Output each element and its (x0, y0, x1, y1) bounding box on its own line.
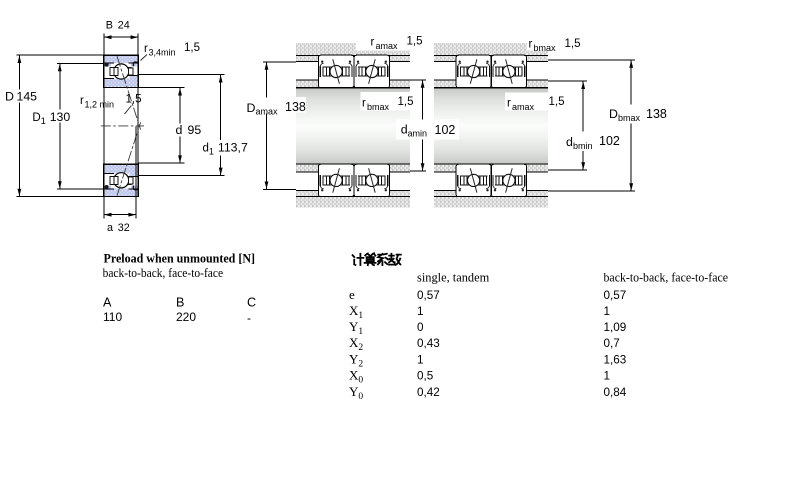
svg-text:r: r (507, 98, 511, 110)
svg-text:138: 138 (646, 107, 667, 121)
svg-text:0: 0 (417, 321, 424, 334)
svg-text:bmax: bmax (534, 43, 557, 53)
svg-text:r: r (371, 37, 375, 49)
svg-text:d: d (566, 135, 573, 149)
svg-text:back-to-back, face-to-face: back-to-back, face-to-face (604, 271, 729, 285)
svg-text:0,57: 0,57 (417, 289, 440, 302)
svg-text:1,5: 1,5 (565, 38, 581, 50)
svg-text:D: D (5, 90, 14, 104)
svg-text:1,63: 1,63 (604, 354, 627, 367)
svg-text:1,5: 1,5 (126, 94, 142, 106)
svg-text:1: 1 (604, 370, 611, 383)
svg-text:0,43: 0,43 (417, 337, 440, 350)
svg-text:r: r (529, 39, 533, 51)
svg-text:back-to-back, face-to-face: back-to-back, face-to-face (103, 266, 224, 280)
svg-text:D: D (247, 101, 256, 115)
svg-text:1,5: 1,5 (407, 36, 423, 48)
svg-text:bmin: bmin (573, 141, 593, 151)
svg-text:102: 102 (435, 123, 456, 137)
svg-text:1,5: 1,5 (184, 42, 200, 54)
svg-text:amax: amax (256, 107, 279, 117)
svg-text:C: C (247, 296, 256, 310)
svg-text:0,57: 0,57 (604, 289, 627, 302)
svg-text:0,84: 0,84 (604, 386, 627, 399)
svg-text:1,5: 1,5 (398, 96, 414, 108)
svg-text:amax: amax (512, 102, 535, 112)
svg-text:1,09: 1,09 (604, 321, 627, 334)
svg-text:102: 102 (599, 134, 620, 148)
svg-text:1: 1 (604, 305, 611, 318)
svg-text:amin: amin (408, 129, 428, 139)
svg-text:D: D (609, 107, 618, 121)
svg-text:Preload when unmounted [N]: Preload when unmounted [N] (104, 252, 256, 266)
svg-text:r: r (362, 98, 366, 110)
svg-text:1: 1 (417, 354, 424, 367)
svg-text:3,4min: 3,4min (149, 48, 176, 58)
svg-text:95: 95 (188, 123, 202, 137)
svg-text:220: 220 (176, 310, 196, 324)
svg-text:bmax: bmax (367, 102, 390, 112)
svg-text:B: B (176, 296, 184, 310)
svg-text:24: 24 (118, 20, 130, 32)
svg-text:B: B (106, 20, 113, 32)
svg-text:e: e (349, 287, 355, 302)
svg-text:138: 138 (285, 100, 306, 114)
svg-text:32: 32 (118, 222, 130, 234)
svg-text:amax: amax (376, 41, 399, 51)
svg-text:r: r (144, 43, 148, 55)
svg-text:0,7: 0,7 (604, 337, 620, 350)
svg-text:110: 110 (103, 310, 122, 324)
svg-text:145: 145 (17, 90, 38, 104)
svg-text:a: a (107, 222, 113, 234)
svg-text:single, tandem: single, tandem (417, 271, 490, 285)
svg-text:d: d (176, 123, 183, 137)
svg-text:1,2 min: 1,2 min (85, 100, 115, 110)
svg-text:bmax: bmax (618, 113, 641, 123)
svg-text:1,5: 1,5 (549, 96, 565, 108)
svg-text:r: r (80, 95, 84, 107)
svg-text:D1130: D1130 (32, 110, 70, 126)
svg-text:0,5: 0,5 (417, 370, 434, 383)
svg-text:-: - (247, 311, 251, 325)
svg-text:1: 1 (417, 305, 424, 318)
svg-text:0,42: 0,42 (417, 386, 440, 399)
svg-text:A: A (103, 296, 112, 310)
